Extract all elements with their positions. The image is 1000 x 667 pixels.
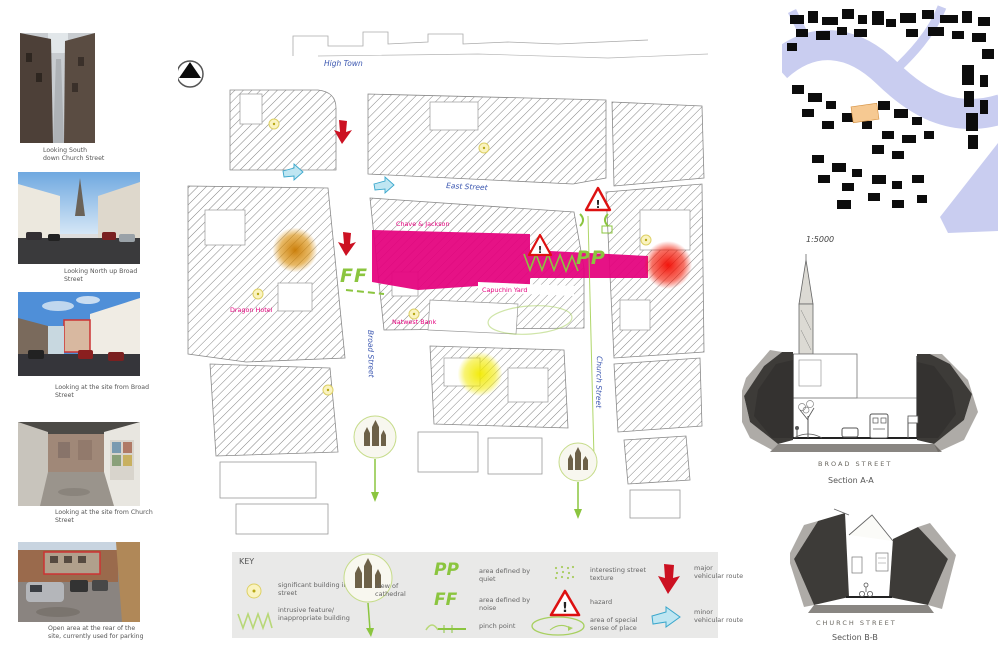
major-route-arrows bbox=[334, 120, 356, 256]
photo-rear-open-area bbox=[18, 542, 140, 622]
site-highlight bbox=[372, 230, 648, 290]
high-town-north-edge bbox=[318, 54, 708, 58]
ff-symbol: FF bbox=[434, 592, 457, 609]
yellow-glow bbox=[452, 346, 508, 402]
minor-route-icon bbox=[650, 606, 684, 630]
photo-caption: Looking at the site from Church Street bbox=[55, 509, 155, 525]
key-label: hazard bbox=[590, 598, 640, 606]
photo-church-street-south-image bbox=[20, 33, 95, 143]
pinch-point-icon bbox=[424, 620, 470, 636]
significant-building-icon bbox=[245, 582, 263, 600]
high-town-label: High Town bbox=[324, 59, 363, 68]
church-street-label: Church Street bbox=[594, 356, 604, 409]
section-b-street-label: CHURCH STREET bbox=[816, 619, 897, 627]
figure-ground-map bbox=[782, 5, 998, 233]
key-label: area defined by noise bbox=[479, 596, 539, 613]
site-analysis-map: FF PP bbox=[178, 28, 723, 545]
key-label: pinch point bbox=[479, 622, 519, 630]
photo-site-from-church-street-image bbox=[18, 422, 140, 506]
section-a-caption: Section A-A bbox=[828, 476, 874, 485]
svg-text:!: ! bbox=[595, 198, 600, 211]
photo-caption: Looking North up Broad Street bbox=[64, 268, 154, 284]
analysis-board: Looking South down Church Street Looking… bbox=[0, 0, 1000, 667]
section-a-a-sketch: BROAD STREET Section A-A bbox=[742, 250, 982, 488]
cathedral-view-church-street bbox=[559, 443, 597, 519]
photo-site-from-broad-street-image bbox=[18, 292, 140, 376]
pp-annotation: PP bbox=[576, 247, 606, 269]
sense-of-place-icon bbox=[530, 614, 588, 638]
photo-site-from-church-street bbox=[18, 422, 140, 506]
pinch-point-broad-street bbox=[346, 290, 384, 294]
orange-glow bbox=[265, 220, 325, 280]
section-b-b-sketch: CHURCH STREET Section B-B bbox=[790, 495, 965, 645]
top-outline-buildings bbox=[293, 32, 648, 56]
pp-symbol: PP bbox=[434, 562, 459, 579]
major-route-icon bbox=[656, 562, 682, 596]
photo-caption: Open area at the rear of the site, curre… bbox=[48, 625, 148, 641]
natwest-bank-label: Natwest Bank bbox=[392, 318, 437, 326]
east-street-label: East Street bbox=[446, 181, 489, 192]
broad-street-label: Broad Street bbox=[366, 330, 376, 379]
figure-ground-scale: 1:5000 bbox=[806, 235, 834, 244]
cathedral-highlight bbox=[851, 103, 879, 122]
photo-site-from-broad-street bbox=[18, 292, 140, 376]
section-a-street-label: BROAD STREET bbox=[818, 460, 892, 468]
svg-text:!: ! bbox=[538, 245, 543, 256]
key-label: minor vehicular route bbox=[694, 608, 744, 625]
capuchin-yard-label: Capuchin Yard bbox=[482, 286, 527, 294]
section-shaded-banks bbox=[742, 350, 978, 452]
photo-rear-open-area-image bbox=[18, 542, 140, 622]
section-street-objects bbox=[794, 401, 918, 439]
key-label: interesting street texture bbox=[590, 566, 652, 583]
photo-church-street-south bbox=[20, 33, 95, 143]
section-building-left bbox=[793, 354, 857, 398]
key-panel: KEY significant building in street intru… bbox=[232, 552, 718, 638]
photo-caption: Looking South down Church Street bbox=[43, 147, 105, 163]
photo-broad-street-north bbox=[18, 172, 140, 264]
intrusive-feature-icon bbox=[236, 610, 274, 632]
photo-caption: Looking at the site from Broad Street bbox=[55, 384, 155, 400]
key-label: area of special sense of place bbox=[590, 616, 652, 633]
chave-jackson-label: Chave & Jackson bbox=[396, 220, 450, 228]
photo-broad-street-north-image bbox=[18, 172, 140, 264]
street-texture-icon bbox=[552, 564, 576, 584]
key-title: KEY bbox=[239, 557, 254, 566]
spire-sketch bbox=[799, 254, 813, 354]
cathedral-view-broad-street bbox=[354, 416, 396, 502]
key-label: view of cathedral bbox=[375, 582, 423, 599]
key-label: major vehicular route bbox=[694, 564, 744, 581]
section-b-caption: Section B-B bbox=[832, 633, 878, 642]
dragon-hotel-label: Dragon Hotel bbox=[230, 306, 273, 314]
ff-annotation: FF bbox=[340, 265, 368, 287]
key-label: area defined by quiet bbox=[479, 567, 539, 584]
north-arrow-icon bbox=[178, 61, 203, 87]
